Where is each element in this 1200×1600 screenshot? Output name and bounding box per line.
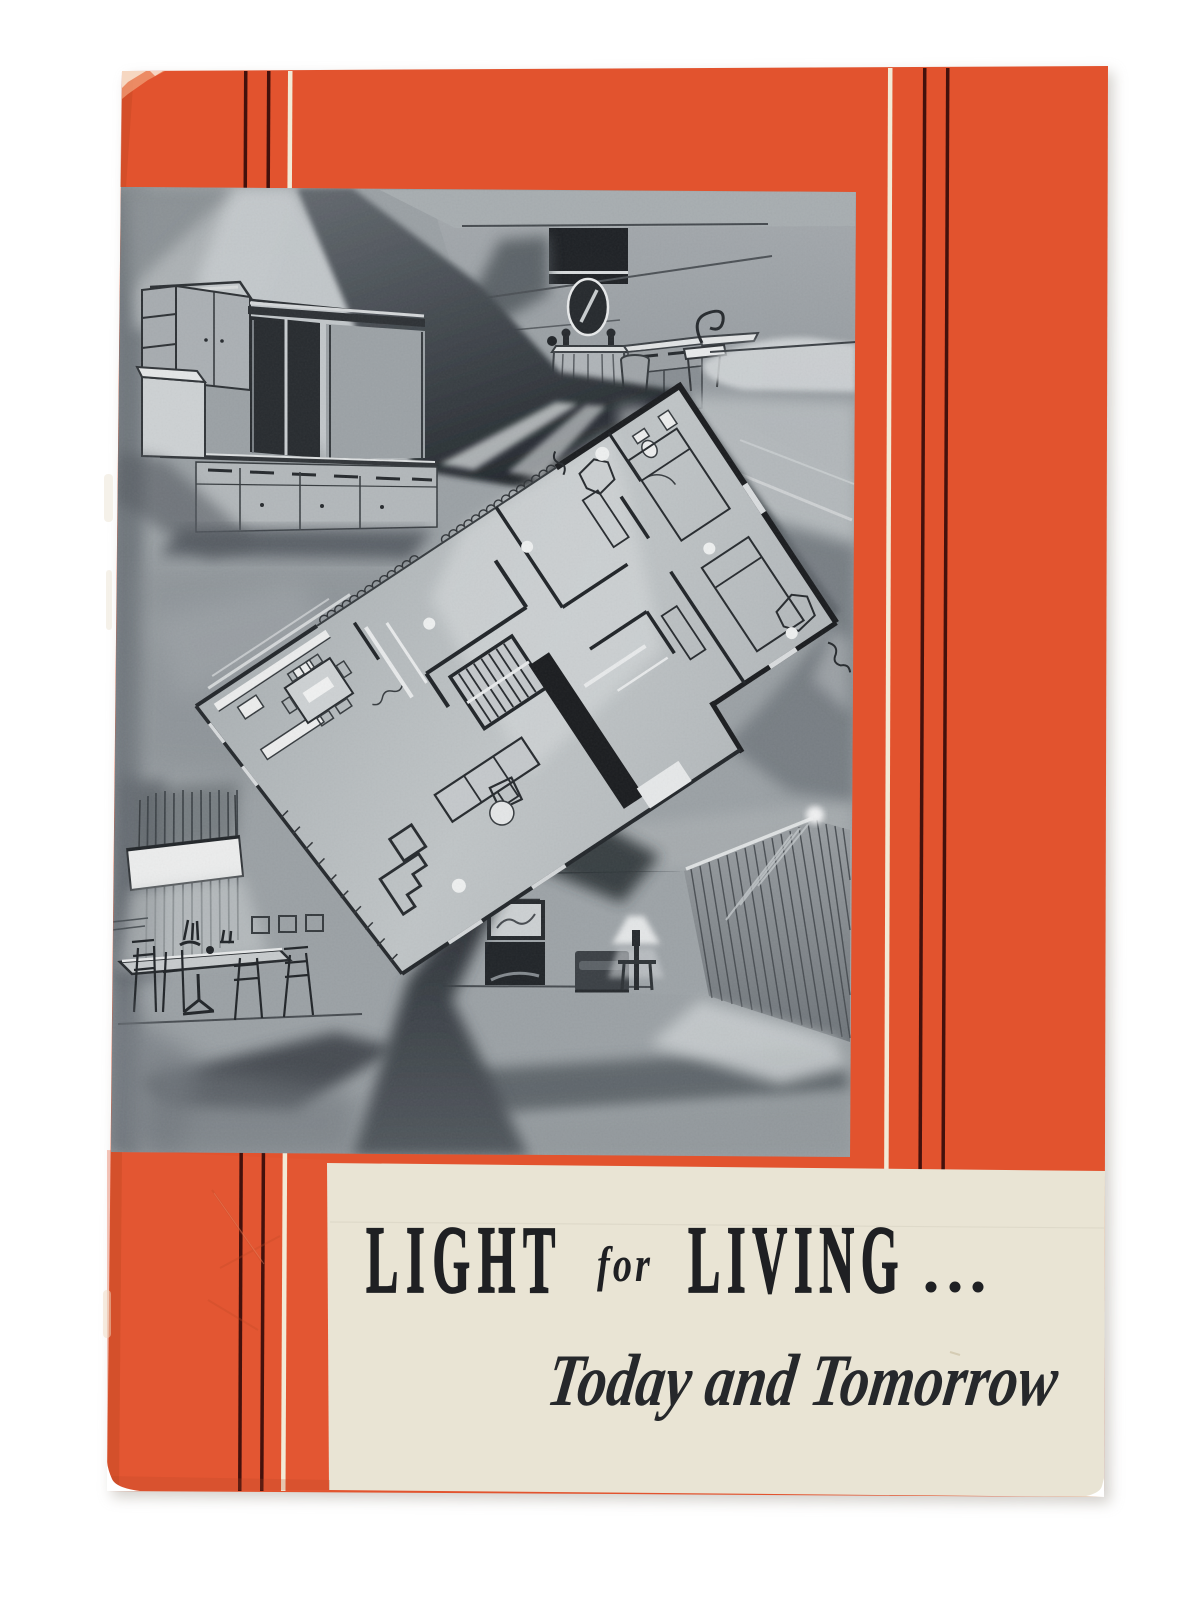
svg-text:LIVING: LIVING xyxy=(688,1206,905,1313)
svg-text:LIGHT: LIGHT xyxy=(366,1206,563,1313)
svg-text:Today and Tomorrow: Today and Tomorrow xyxy=(543,1340,1064,1422)
svg-text:for: for xyxy=(597,1236,653,1292)
